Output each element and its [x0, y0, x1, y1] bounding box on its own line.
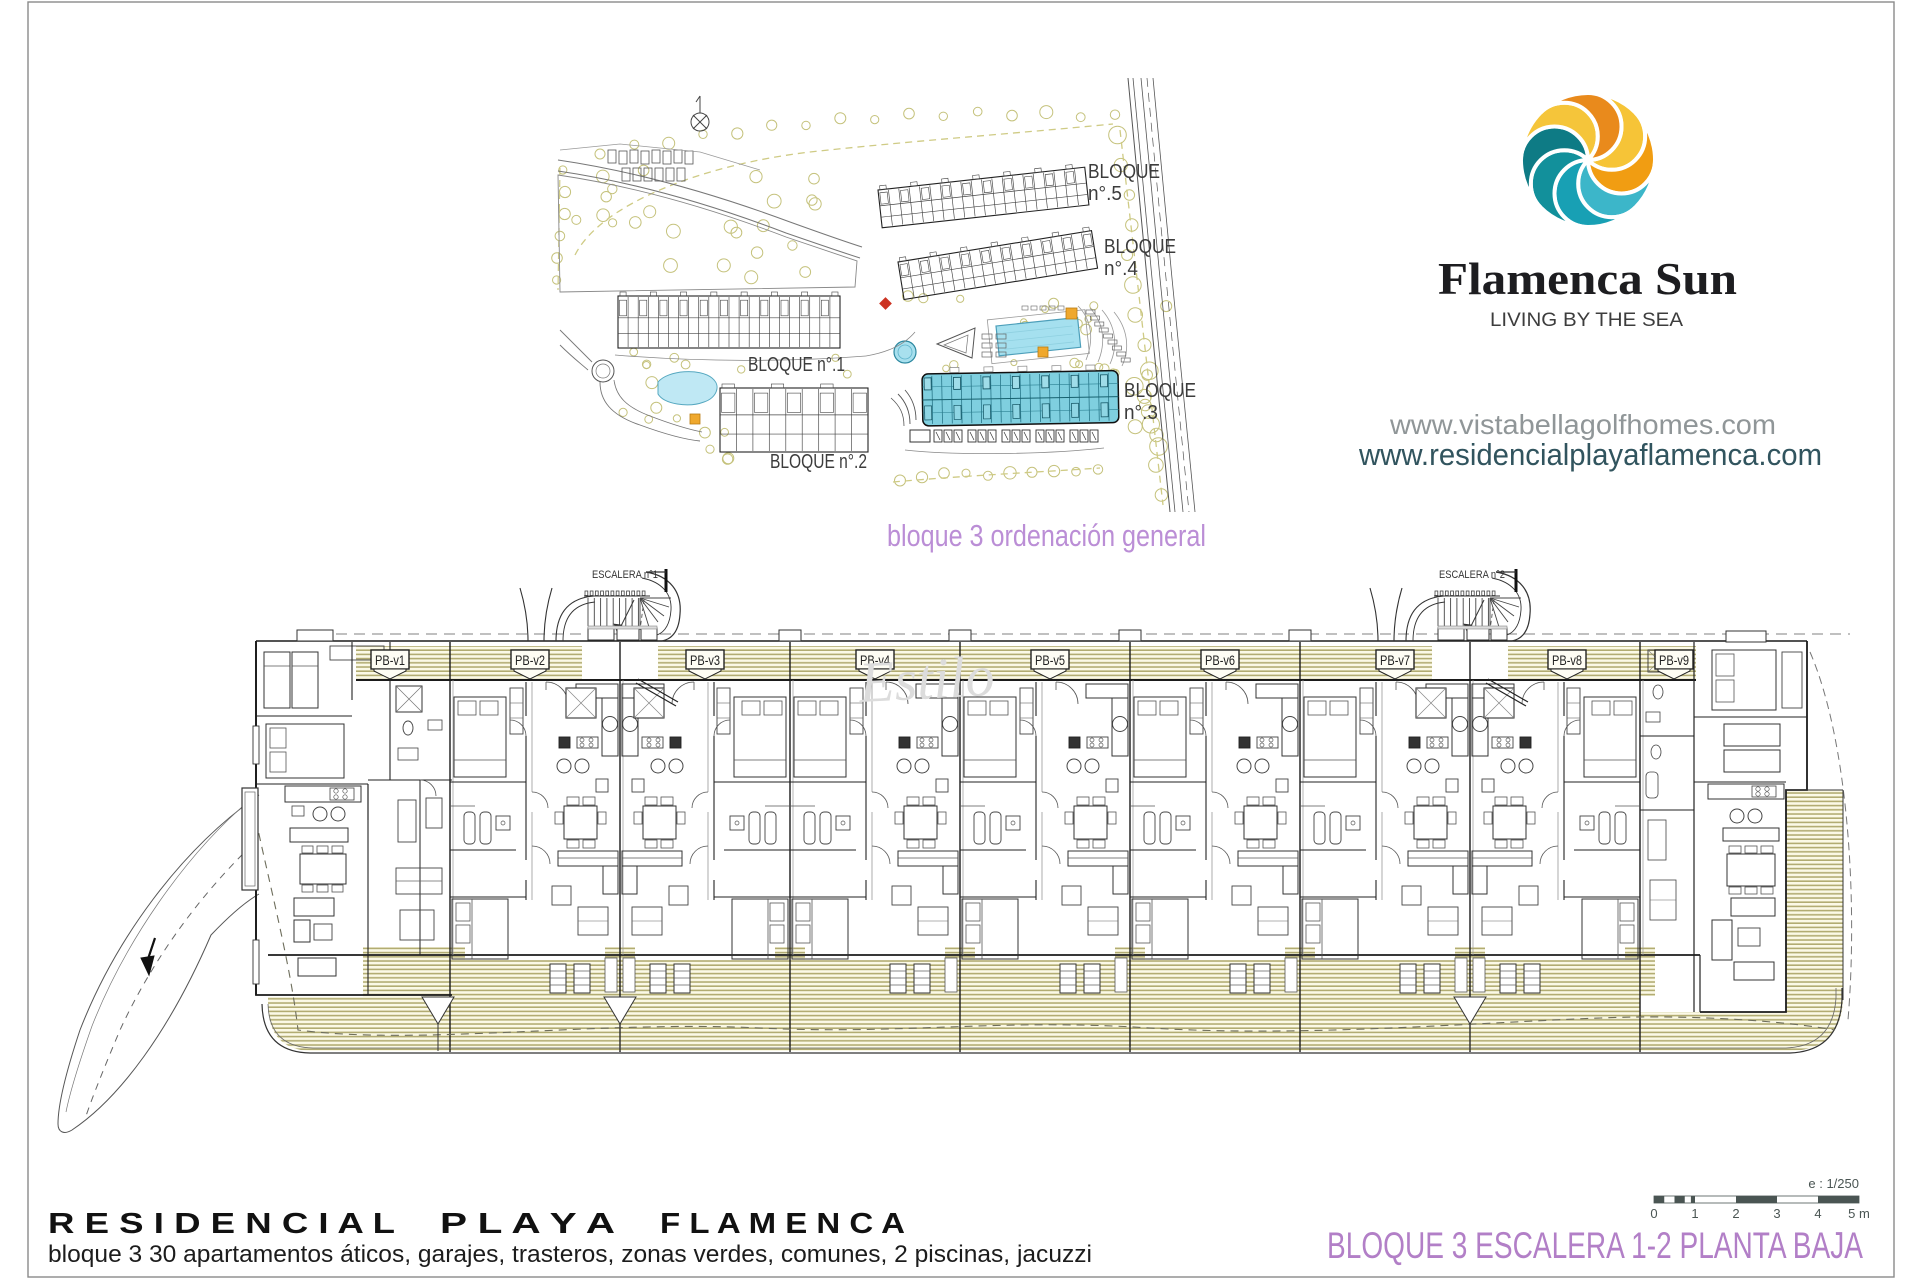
svg-text:BLOQUE: BLOQUE — [1088, 161, 1160, 183]
svg-text:PB-v1: PB-v1 — [375, 652, 405, 668]
svg-text:R E S I D E N C I A L: R E S I D E N C I A L — [48, 1208, 395, 1240]
svg-text:PB-v5: PB-v5 — [1035, 652, 1065, 668]
svg-text:5 m: 5 m — [1848, 1206, 1870, 1221]
svg-text:bloque 3 30 apartamentos átic: bloque 3 30 apartamentos áticos, garajes… — [48, 1241, 1092, 1268]
svg-text:ESCALERA n°1: ESCALERA n°1 — [592, 569, 658, 581]
svg-text:PB-v9: PB-v9 — [1659, 652, 1689, 668]
svg-text:n°.4: n°.4 — [1104, 258, 1138, 280]
svg-text:www.vistabellagolfhomes.com: www.vistabellagolfhomes.com — [1389, 409, 1776, 440]
svg-text:www.residencialplayaflamenca.c: www.residencialplayaflamenca.com — [1358, 437, 1822, 472]
svg-text:0: 0 — [1650, 1206, 1657, 1221]
svg-text:ESCALERA n°2: ESCALERA n°2 — [1439, 569, 1505, 581]
svg-text:1: 1 — [1691, 1206, 1698, 1221]
svg-text:Flamenca Sun: Flamenca Sun — [1438, 253, 1737, 304]
svg-text:PB-v3: PB-v3 — [690, 652, 720, 668]
svg-text:2: 2 — [1732, 1206, 1739, 1221]
svg-text:PB-v8: PB-v8 — [1552, 652, 1582, 668]
svg-text:n°.5: n°.5 — [1088, 183, 1122, 205]
svg-text:bloque 3 ordenación general: bloque 3 ordenación general — [887, 518, 1206, 553]
svg-text:BLOQUE: BLOQUE — [1124, 380, 1196, 402]
svg-text:PB-v2: PB-v2 — [515, 652, 545, 668]
svg-text:BLOQUE n°.2: BLOQUE n°.2 — [770, 451, 867, 473]
svg-text:PB-v7: PB-v7 — [1380, 652, 1410, 668]
svg-text:BLOQUE 3 ESCALERA 1-2 PLANTA: BLOQUE 3 ESCALERA 1-2 PLANTA BAJA — [1327, 1225, 1863, 1266]
svg-text:Estilo: Estilo — [856, 643, 996, 715]
svg-text:n°.3: n°.3 — [1124, 402, 1158, 424]
svg-text:PB-v6: PB-v6 — [1205, 652, 1235, 668]
svg-text:4: 4 — [1814, 1206, 1821, 1221]
svg-text:F L A M E N C A: F L A M E N C A — [660, 1208, 905, 1240]
svg-text:LIVING BY THE SEA: LIVING BY THE SEA — [1490, 310, 1683, 331]
svg-text:BLOQUE: BLOQUE — [1104, 236, 1176, 258]
svg-text:BLOQUE n°.1: BLOQUE n°.1 — [748, 354, 845, 376]
svg-text:P L A Y A: P L A Y A — [440, 1208, 615, 1240]
svg-text:e : 1/250: e : 1/250 — [1808, 1176, 1859, 1191]
svg-text:3: 3 — [1773, 1206, 1780, 1221]
